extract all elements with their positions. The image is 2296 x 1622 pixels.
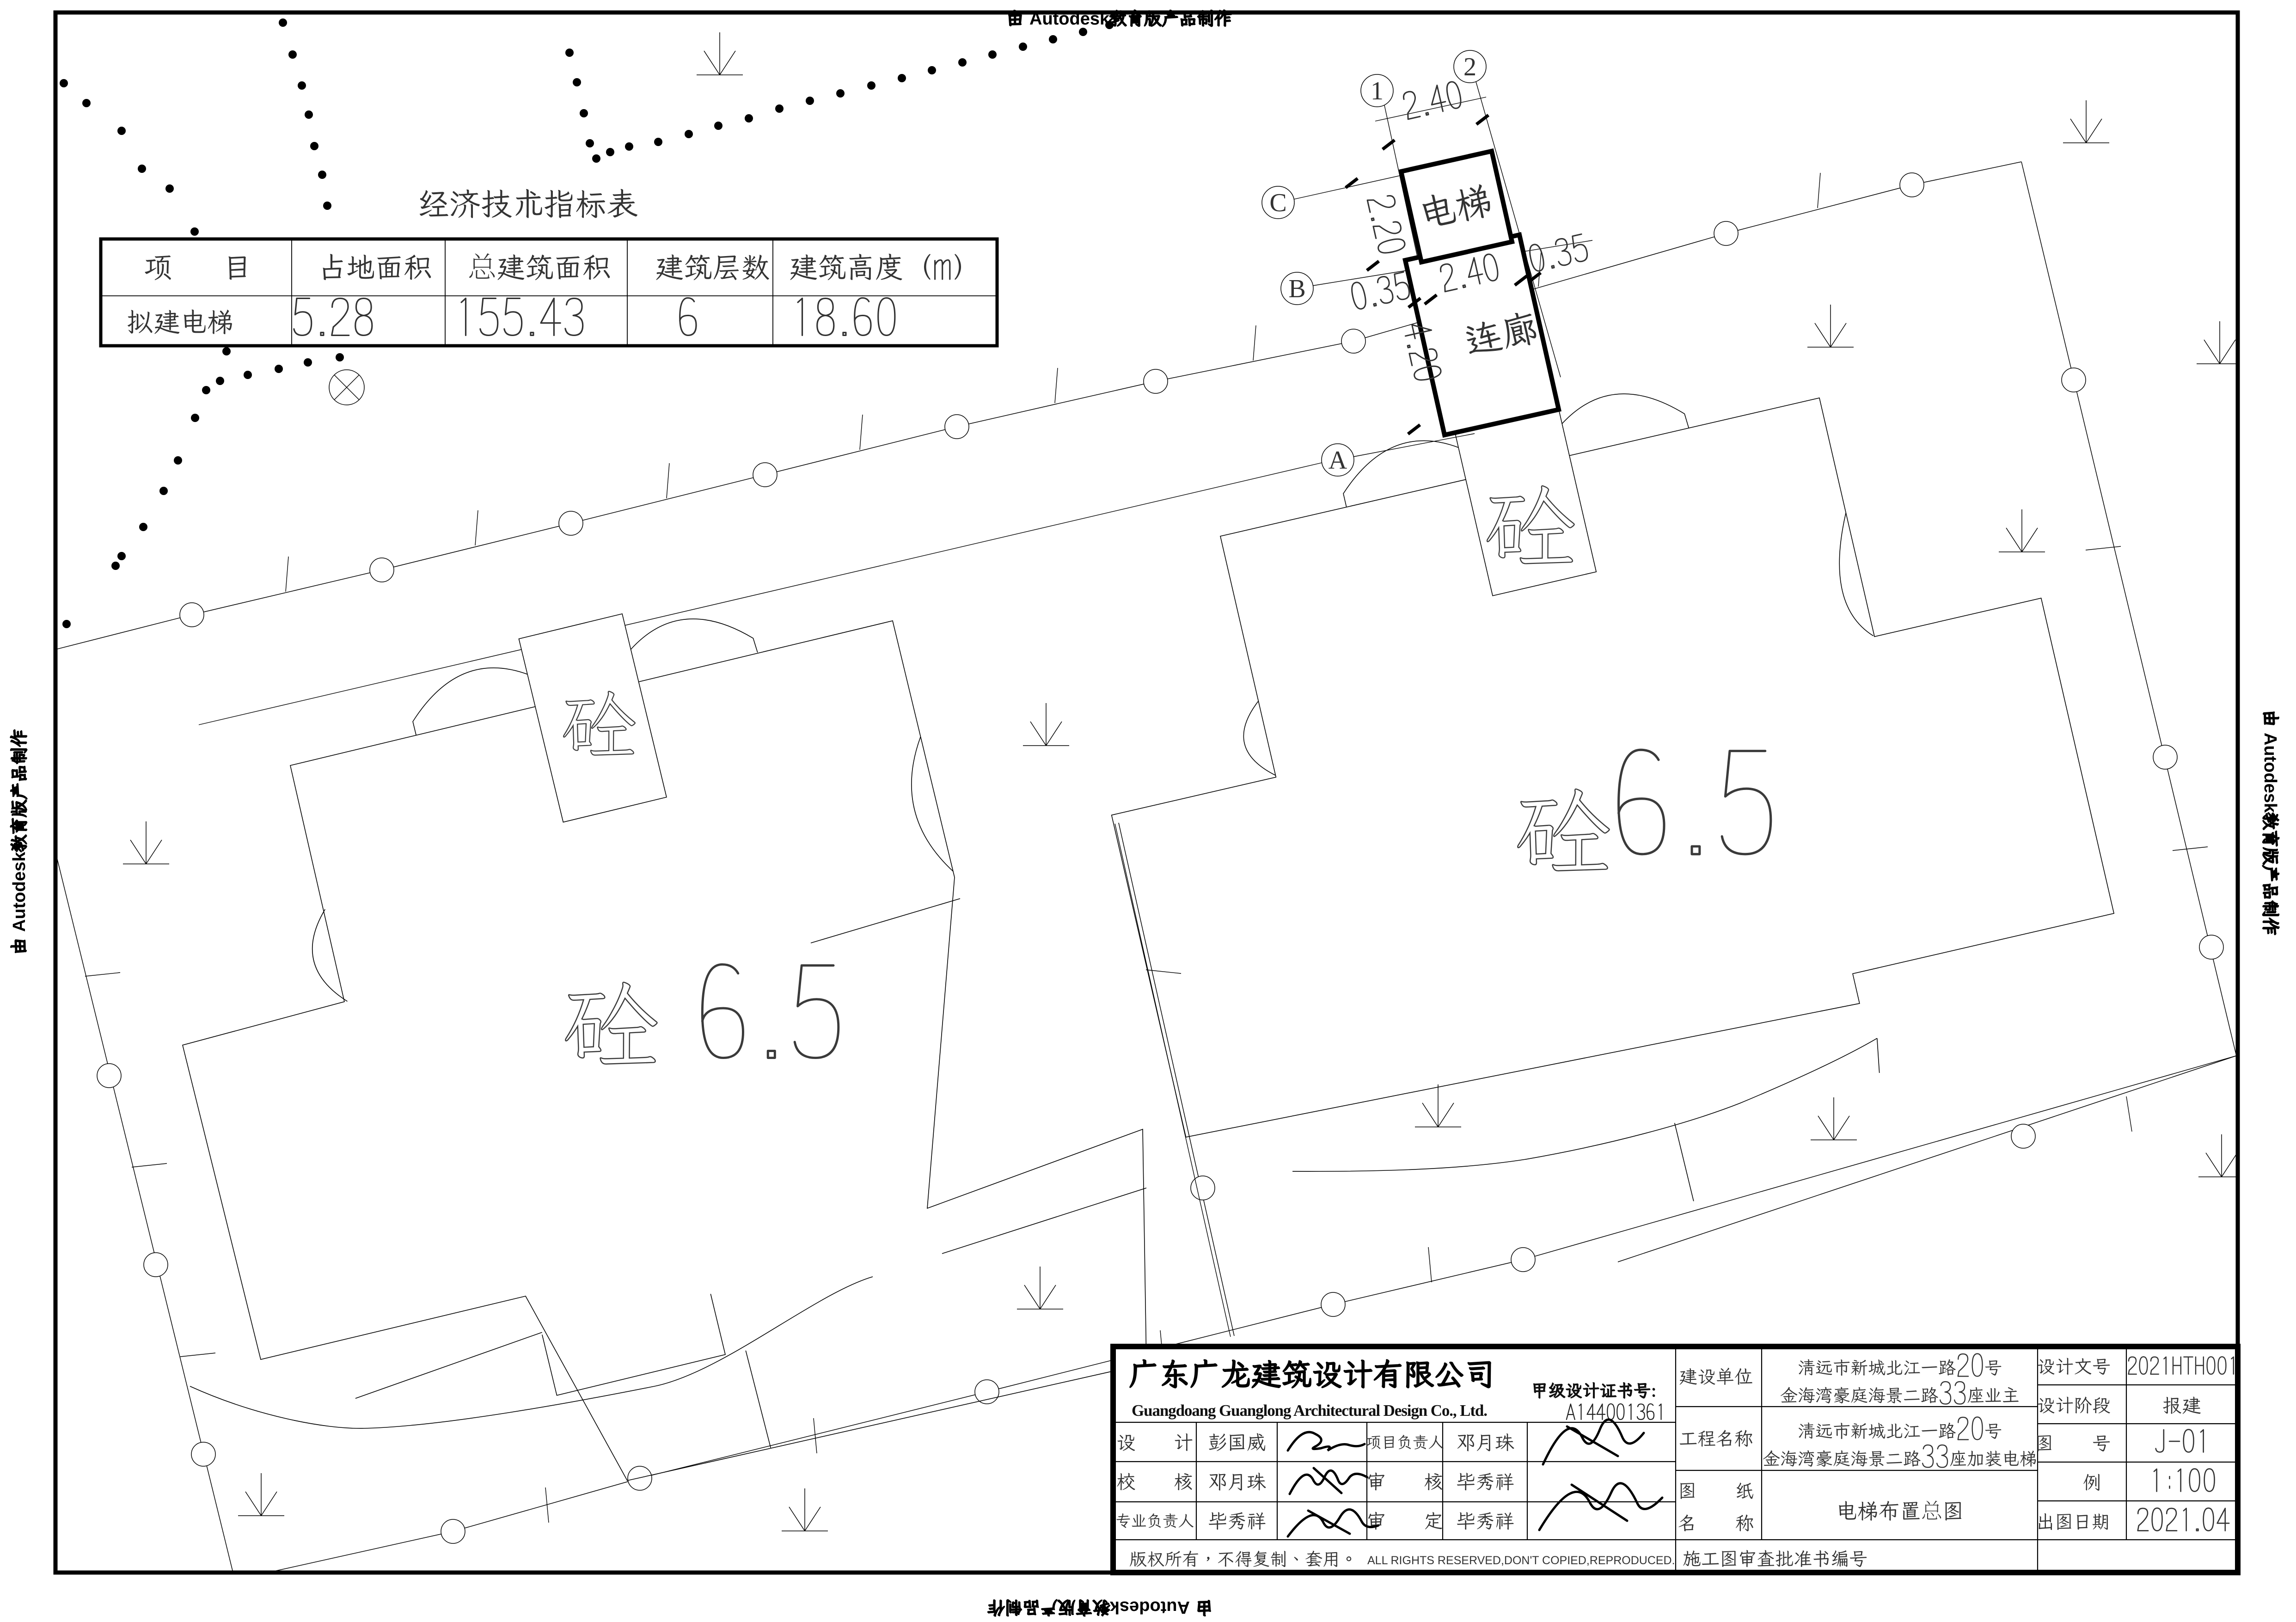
svg-text:1: 1 <box>1371 77 1384 105</box>
svg-text:ALL RIGHTS RESERVED,DON'T COPI: ALL RIGHTS RESERVED,DON'T COPIED,REPRODU… <box>1367 1554 1675 1567</box>
svg-text:Autodesk: Autodesk <box>1029 9 1110 29</box>
svg-text:C: C <box>1269 189 1286 217</box>
svg-text:A: A <box>1329 446 1347 475</box>
svg-text:Autodesk: Autodesk <box>2260 733 2280 813</box>
svg-text:Autodesk: Autodesk <box>1109 1598 1190 1617</box>
svg-text:Autodesk: Autodesk <box>10 851 29 932</box>
svg-text:2: 2 <box>1463 53 1476 81</box>
svg-text:Guangdoang Guanglong Architect: Guangdoang Guanglong Architectural Desig… <box>1132 1402 1488 1420</box>
svg-text:B: B <box>1288 275 1305 303</box>
